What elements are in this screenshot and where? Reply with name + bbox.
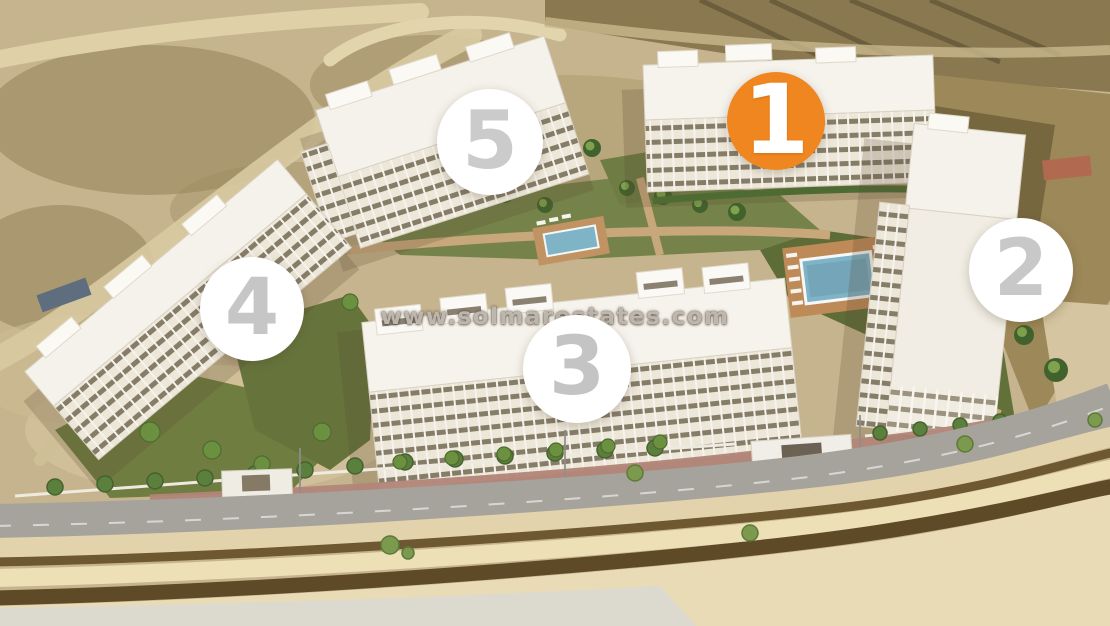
marker-block-1[interactable]: 1 — [727, 72, 825, 170]
marker-block-5[interactable]: 5 — [437, 89, 543, 195]
marker-block-3[interactable]: 3 — [523, 315, 631, 423]
aerial-development-photo: www.solmarestates.com 12345 — [0, 0, 1110, 626]
marker-block-2[interactable]: 2 — [969, 218, 1073, 322]
entrance-gate-left — [222, 469, 293, 497]
site-plan-render — [0, 0, 1110, 626]
marker-block-4[interactable]: 4 — [200, 257, 304, 361]
